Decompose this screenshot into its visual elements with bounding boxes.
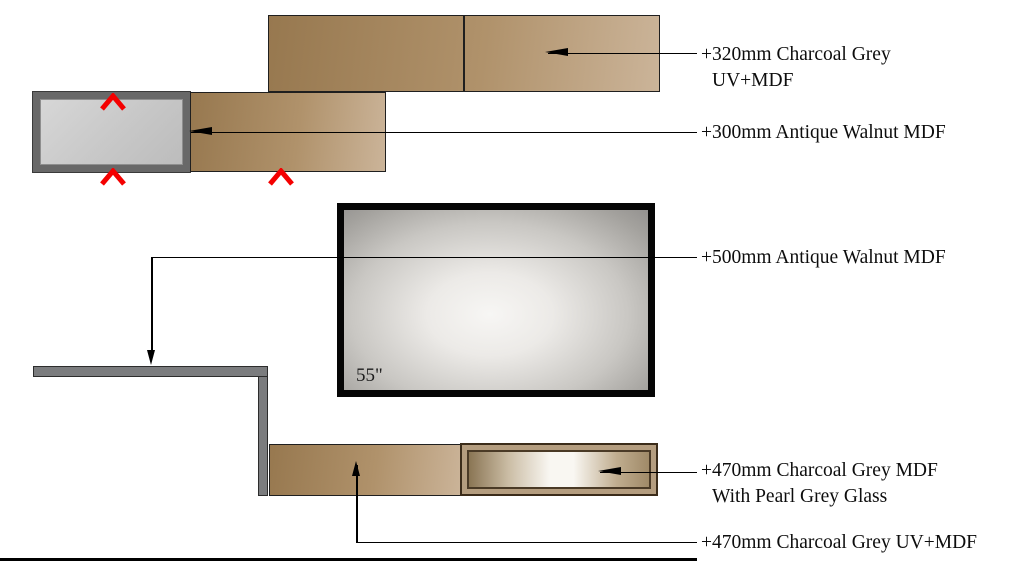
annotation-line: +470mm Charcoal Grey UV+MDF bbox=[701, 532, 977, 553]
red-chevron-marker-icon bbox=[99, 93, 127, 113]
annotation-glass-door: +470mm Charcoal Grey MDF With Pearl Grey… bbox=[701, 458, 938, 510]
red-chevron-marker-icon bbox=[267, 168, 295, 188]
tv-size-label: 55" bbox=[356, 365, 383, 387]
top-cabinet-divider bbox=[463, 16, 465, 91]
leader-line-shelf-vertical bbox=[151, 257, 153, 352]
annotation-walnut-panel: +300mm Antique Walnut MDF bbox=[701, 120, 946, 146]
leader-line-bottom-cabinet-horizontal bbox=[356, 542, 697, 544]
annotation-line: +470mm Charcoal Grey MDF bbox=[701, 460, 938, 481]
bottom-cabinet-panel bbox=[269, 444, 462, 496]
annotation-line: With Pearl Grey Glass bbox=[712, 484, 938, 510]
annotation-line: +320mm Charcoal Grey bbox=[701, 44, 891, 65]
leader-line-shelf-horizontal bbox=[151, 257, 697, 259]
shelf-horizontal bbox=[33, 366, 268, 377]
leader-arrow-icon bbox=[545, 48, 568, 56]
elevation-diagram: 55" +320mm Charcoal Grey UV+MDF +300mm A… bbox=[0, 0, 1035, 578]
shelf-vertical bbox=[258, 376, 268, 496]
leader-line-top-cabinet bbox=[548, 53, 697, 55]
leader-arrow-icon bbox=[352, 461, 360, 476]
annotation-line: +500mm Antique Walnut MDF bbox=[701, 247, 946, 268]
annotation-line: UV+MDF bbox=[712, 68, 891, 94]
red-chevron-marker-icon bbox=[99, 168, 127, 188]
floor-line bbox=[0, 558, 697, 561]
annotation-top-cabinet: +320mm Charcoal Grey UV+MDF bbox=[701, 42, 891, 94]
leader-arrow-icon bbox=[147, 350, 155, 365]
leader-line-walnut-panel bbox=[191, 132, 697, 134]
annotation-shelf: +500mm Antique Walnut MDF bbox=[701, 245, 946, 271]
leader-line-bottom-cabinet-vertical bbox=[356, 465, 358, 543]
pearl-grey-glass bbox=[467, 450, 651, 489]
annotation-bottom-cabinet: +470mm Charcoal Grey UV+MDF bbox=[701, 530, 977, 556]
annotation-line: +300mm Antique Walnut MDF bbox=[701, 122, 946, 143]
glass-door-frame bbox=[460, 443, 658, 496]
leader-arrow-icon bbox=[598, 467, 621, 475]
tv-screen: 55" bbox=[337, 203, 655, 397]
leader-arrow-icon bbox=[189, 127, 212, 135]
